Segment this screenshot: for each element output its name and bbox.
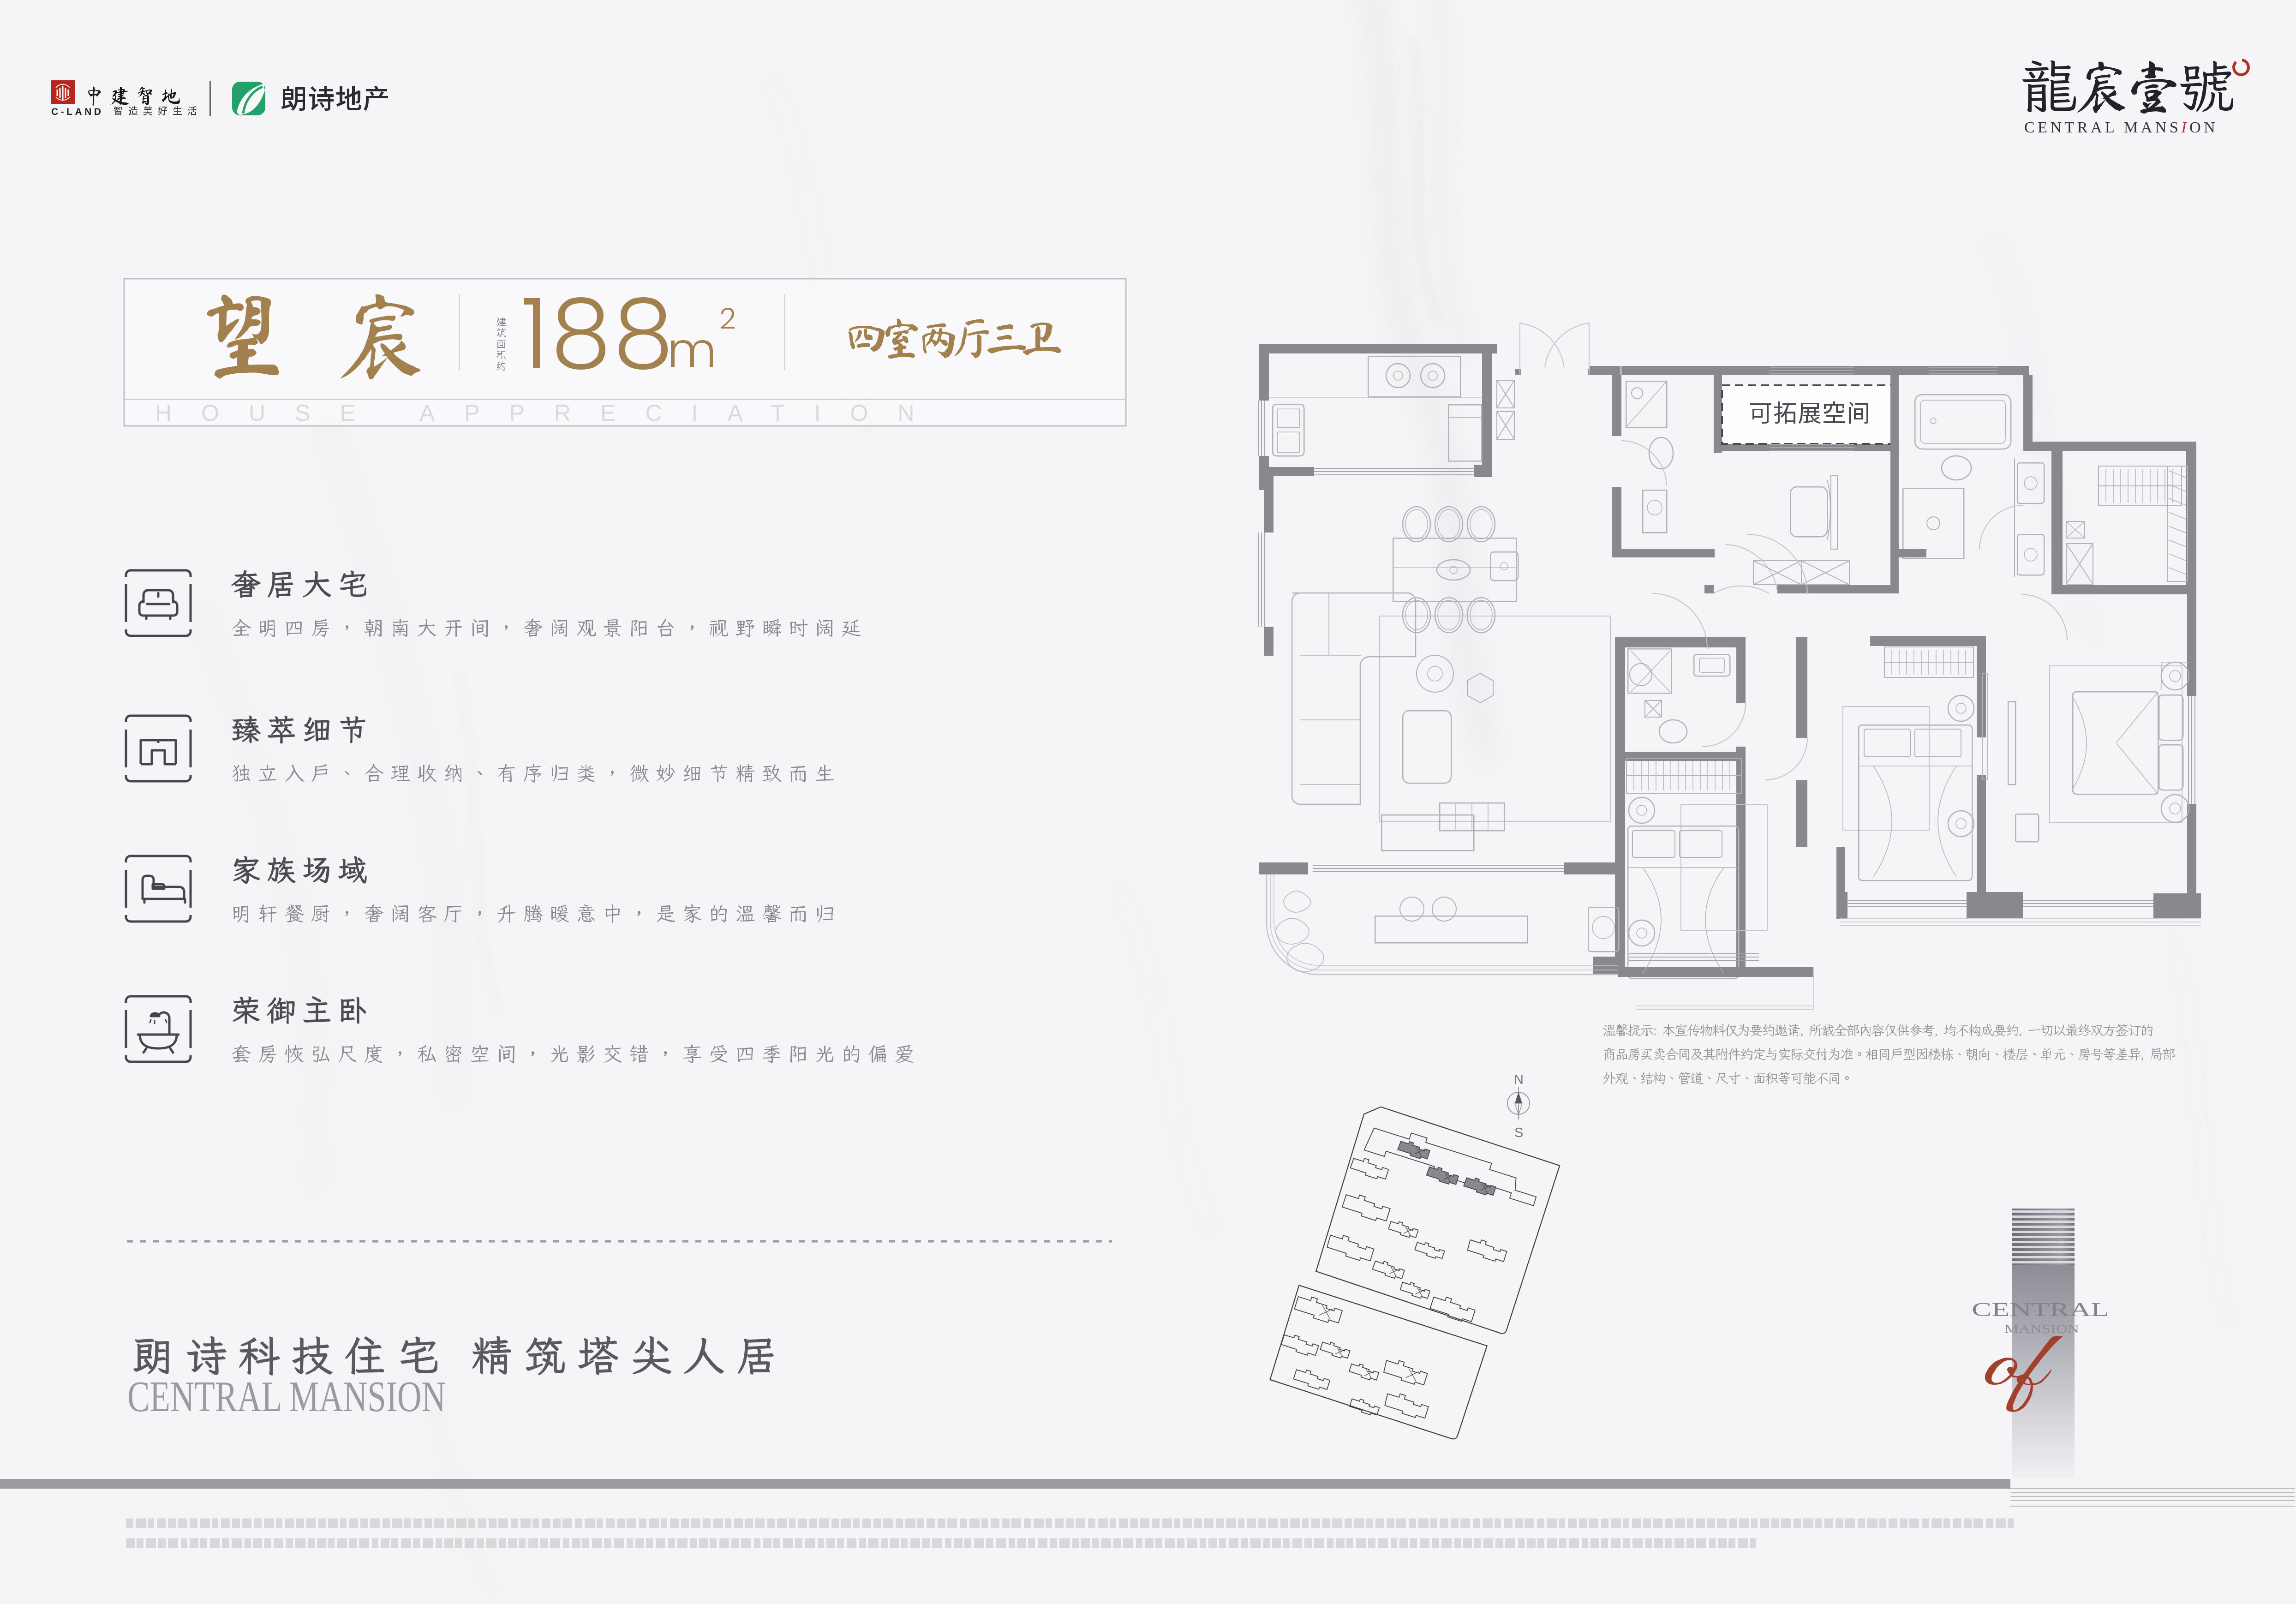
svg-text:CENTRAL: CENTRAL — [1972, 1299, 2109, 1321]
svg-text:C-LAND: C-LAND — [51, 107, 103, 117]
svg-text:N: N — [1514, 1072, 1524, 1087]
svg-text:CENTRAL MANSION: CENTRAL MANSION — [127, 1373, 446, 1421]
svg-text:CENTRAL MANSION: CENTRAL MANSION — [2024, 119, 2218, 136]
svg-text:HOUSE APPRECIATION: HOUSE APPRECIATION — [155, 400, 944, 426]
svg-text:MANSION: MANSION — [2004, 1323, 2079, 1335]
svg-text:S: S — [1514, 1125, 1523, 1140]
